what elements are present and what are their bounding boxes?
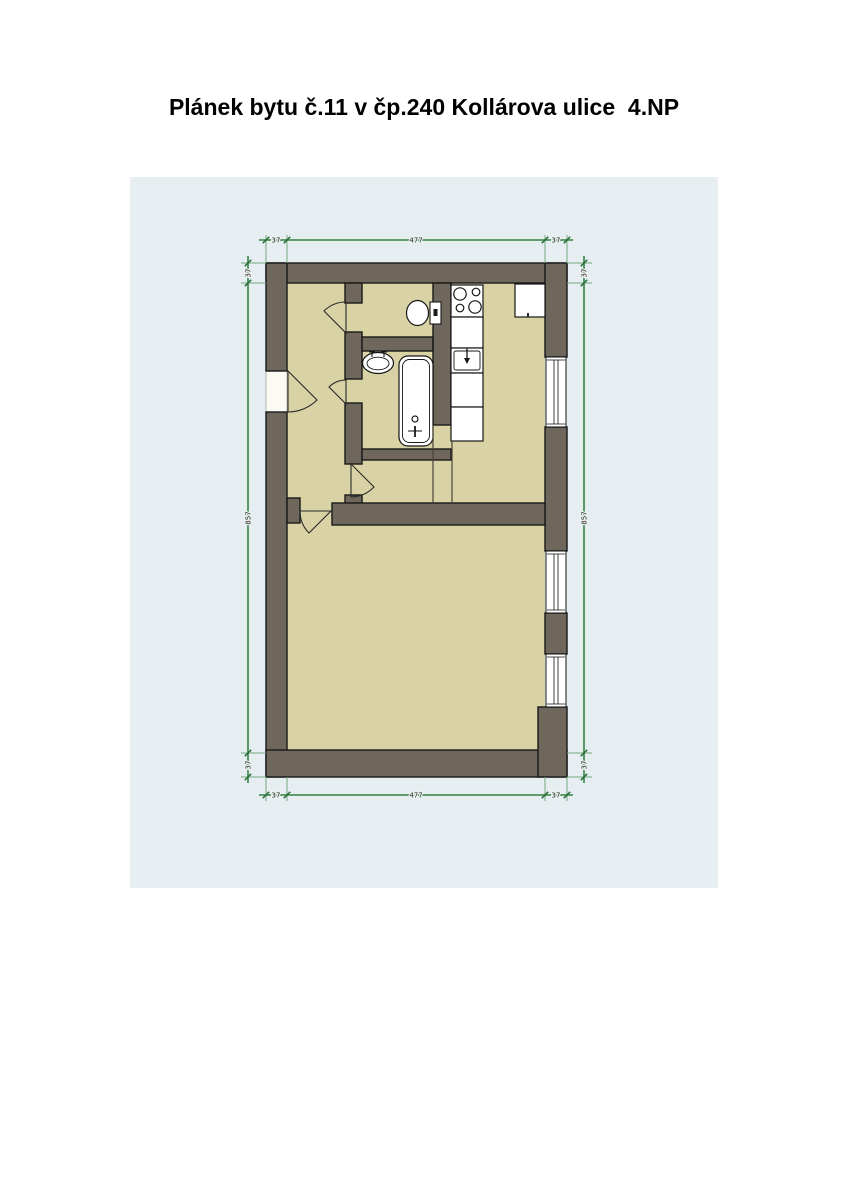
- dim-label-top-right: 37: [552, 237, 561, 245]
- wall-top: [266, 263, 567, 283]
- window-kitchen: [546, 357, 566, 427]
- wall-bottom: [266, 750, 567, 777]
- kitchen-sink: [451, 348, 483, 373]
- wall-right-1: [545, 263, 567, 357]
- wall-hall-2: [345, 332, 362, 379]
- wall-right-corner: [538, 707, 567, 777]
- bathtub: [399, 356, 433, 446]
- entrance-threshold: [266, 371, 287, 412]
- dim-label-bottom-left: 37: [272, 792, 281, 800]
- toilet: [407, 301, 442, 326]
- toilet-bowl: [407, 301, 429, 326]
- burner-icon: [454, 288, 466, 300]
- wall-left-lower: [266, 412, 287, 777]
- kitchen-counter: [451, 373, 483, 407]
- dim-label-left-bottom: 37: [245, 761, 253, 770]
- dim-label-top-middle: 477: [409, 237, 422, 245]
- wall-right-2: [545, 427, 567, 551]
- window-living-2: [546, 654, 566, 707]
- kitchen-counter: [451, 317, 483, 348]
- wall-livingroom: [332, 503, 545, 525]
- wall-left-upper: [266, 263, 287, 371]
- wall-livingroom-stub: [287, 498, 300, 523]
- kitchen-counter: [451, 407, 483, 441]
- page-title: Plánek bytu č.11 v čp.240 Kollárova ulic…: [0, 94, 848, 121]
- dim-label-bottom-middle: 477: [409, 792, 422, 800]
- burner-icon: [472, 288, 480, 296]
- wall-hall-1: [345, 283, 362, 303]
- wall-hall-3: [345, 403, 362, 464]
- window-living-1: [546, 551, 566, 613]
- toilet-button: [434, 309, 438, 316]
- dim-label-right-top: 37: [581, 269, 589, 278]
- floor-plan: 37 477 37 37 477 37 37 857 37 37 857 37: [130, 177, 718, 888]
- wall-bath-bottom: [362, 449, 451, 460]
- wall-wc-bath: [362, 337, 433, 351]
- washbasin: [363, 352, 394, 374]
- dim-label-right-middle: 857: [581, 511, 589, 524]
- refrigerator: [515, 284, 545, 317]
- wall-right-pier: [545, 613, 567, 654]
- dim-label-right-bottom: 37: [581, 761, 589, 770]
- dim-label-left-middle: 857: [245, 511, 253, 524]
- burner-icon: [469, 301, 481, 313]
- dim-label-top-left: 37: [272, 237, 281, 245]
- dim-label-bottom-right: 37: [552, 792, 561, 800]
- dim-label-left-top: 37: [245, 269, 253, 278]
- burner-icon: [456, 304, 464, 312]
